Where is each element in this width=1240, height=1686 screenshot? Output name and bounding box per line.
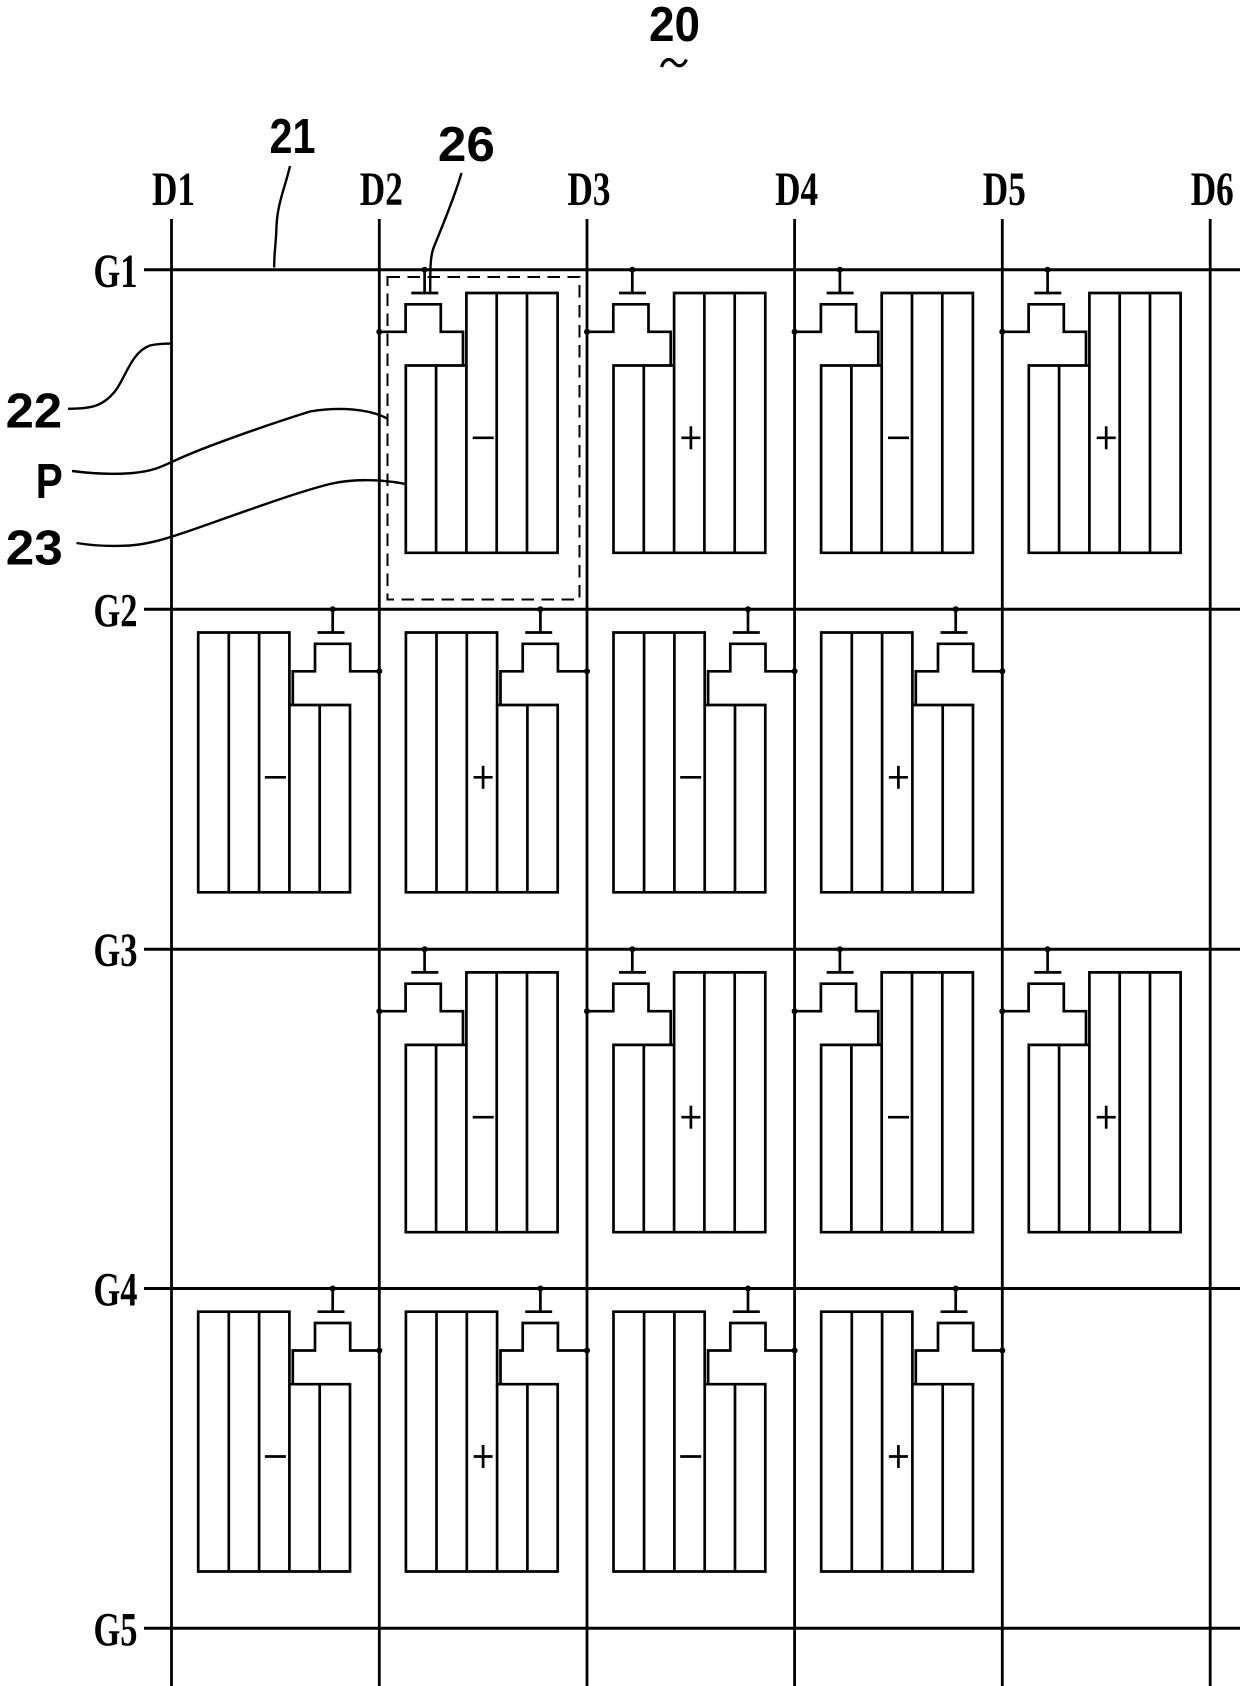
svg-text:P: P [36,455,63,509]
svg-text:D4: D4 [775,163,818,216]
svg-text:26: 26 [438,118,495,172]
svg-text:D3: D3 [568,163,611,216]
svg-text:22: 22 [6,384,63,438]
svg-text:23: 23 [6,521,63,575]
svg-text:G2: G2 [94,584,138,637]
svg-text:G3: G3 [94,924,138,977]
svg-text:D1: D1 [152,163,195,216]
svg-text:G1: G1 [94,245,138,298]
svg-text:D2: D2 [360,163,403,216]
svg-text:20: 20 [649,0,700,52]
svg-text:D5: D5 [983,163,1026,216]
svg-text:G4: G4 [94,1264,138,1317]
svg-text:D6: D6 [1191,163,1234,216]
svg-text:G5: G5 [94,1603,138,1656]
svg-text:21: 21 [270,110,316,164]
